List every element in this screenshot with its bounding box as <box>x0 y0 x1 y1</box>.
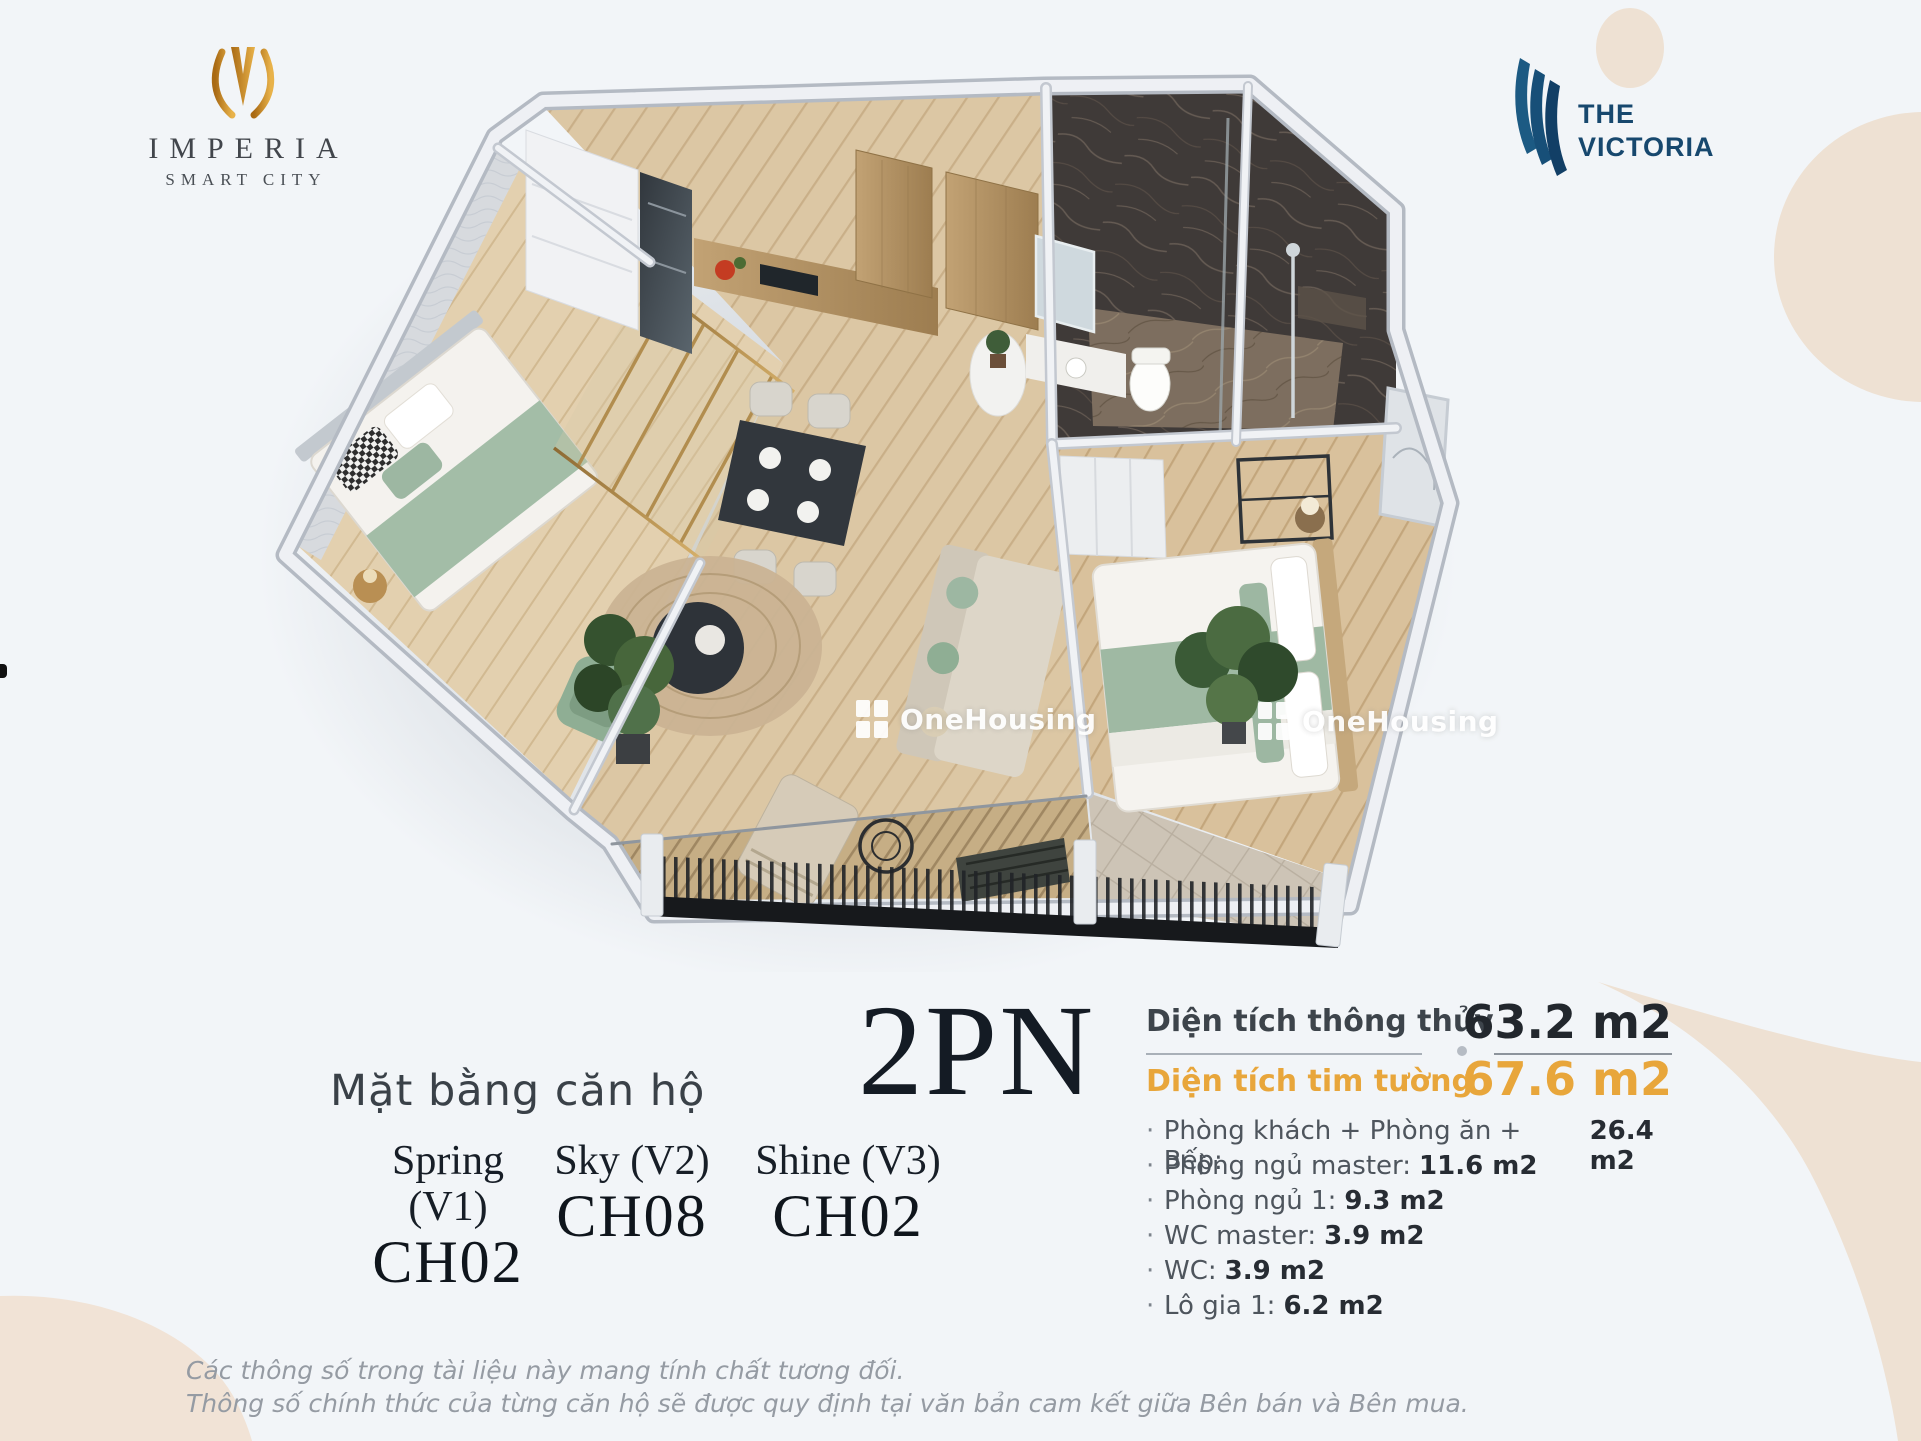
entry-door <box>946 172 1038 330</box>
console-plant <box>986 330 1010 354</box>
toilet <box>1130 357 1170 411</box>
plant-pot <box>616 734 650 764</box>
room-value: 26.4 m2 <box>1590 1116 1706 1176</box>
watermark-text: OneHousing <box>900 703 1097 736</box>
plate <box>809 459 831 481</box>
room-row: · WC: 3.9 m2 <box>1146 1256 1706 1291</box>
room-value: 3.9 m2 <box>1324 1221 1424 1251</box>
variant-unit: CH02 <box>748 1184 948 1248</box>
victoria-wordmark: THE VICTORIA <box>1578 98 1715 164</box>
gross-area-value: 67.6 m2 <box>1420 1052 1672 1106</box>
coffee-tray <box>695 625 725 655</box>
plate <box>797 501 819 523</box>
onehousing-window-icon <box>856 700 890 738</box>
variant-shine: Shine (V3) CH02 <box>748 1138 948 1248</box>
bed1-lamp <box>363 569 377 583</box>
floorplan-render <box>248 58 1472 972</box>
bullet-icon: · <box>1146 1151 1164 1181</box>
onehousing-window-icon <box>1258 702 1292 740</box>
variant-spring: Spring (V1) CH02 <box>348 1138 548 1294</box>
wardrobe <box>1060 456 1166 558</box>
tree-pot <box>1222 722 1246 744</box>
victoria-line1: THE <box>1578 98 1715 131</box>
toilet-tank <box>1132 348 1170 364</box>
victoria-logo: THE VICTORIA <box>1510 54 1770 194</box>
variant-name: Shine (V3) <box>748 1138 948 1184</box>
variant-unit: CH02 <box>348 1230 548 1294</box>
railing-post <box>641 834 663 916</box>
dining-chair <box>750 382 792 416</box>
scan-artifact <box>0 664 7 678</box>
bullet-icon: · <box>1146 1186 1164 1216</box>
room-areas-list: · Phòng khách + Phòng ăn + Bếp: 26.4 m2 … <box>1146 1116 1706 1326</box>
plate <box>759 447 781 469</box>
bullet-icon: · <box>1146 1256 1164 1286</box>
room-label: Phòng ngủ 1: <box>1164 1186 1336 1216</box>
fruit-bowl <box>715 260 735 280</box>
dining-chair <box>808 394 850 428</box>
watermark-text: OneHousing <box>1302 705 1499 738</box>
shower-head <box>1286 243 1300 257</box>
room-value: 6.2 m2 <box>1283 1291 1383 1321</box>
console-pot <box>990 354 1006 368</box>
fruit-greens <box>734 257 746 269</box>
room-label: WC: <box>1164 1256 1217 1286</box>
master-lamp <box>1301 497 1319 515</box>
disclaimer-line1: Các thông số trong tài liệu này mang tín… <box>186 1354 1469 1387</box>
plan-title-label: Mặt bằng căn hộ <box>330 1066 705 1116</box>
room-value: 9.3 m2 <box>1344 1186 1444 1216</box>
room-row: · Phòng khách + Phòng ăn + Bếp: 26.4 m2 <box>1146 1116 1706 1151</box>
room-value: 11.6 m2 <box>1419 1151 1537 1181</box>
dining-chair <box>794 562 836 596</box>
divider-line <box>1146 1053 1422 1055</box>
railing-post <box>1074 840 1096 924</box>
variant-name: Spring (V1) <box>348 1138 548 1230</box>
victoria-stripes-icon <box>1510 56 1576 192</box>
plan-type: 2PN <box>858 986 1095 1116</box>
closet-door <box>856 150 932 298</box>
room-row: · Lô gia 1: 6.2 m2 <box>1146 1291 1706 1326</box>
room-row: · WC master: 3.9 m2 <box>1146 1221 1706 1256</box>
plate <box>747 489 769 511</box>
variant-name: Sky (V2) <box>542 1138 722 1184</box>
victoria-line2: VICTORIA <box>1578 131 1715 164</box>
room-value: 3.9 m2 <box>1225 1256 1325 1286</box>
disclaimer-line2: Thông số chính thức của từng căn hộ sẽ đ… <box>186 1387 1469 1420</box>
room-label: Lô gia 1: <box>1164 1291 1275 1321</box>
room-label: Phòng ngủ master: <box>1164 1151 1411 1181</box>
room-row: · Phòng ngủ 1: 9.3 m2 <box>1146 1186 1706 1221</box>
clear-area-value: 63.2 m2 <box>1420 995 1672 1049</box>
room-label: WC master: <box>1164 1221 1316 1251</box>
variant-unit: CH08 <box>542 1184 722 1248</box>
bathroom-basin <box>1066 358 1086 378</box>
onehousing-watermark: OneHousing <box>1258 702 1499 740</box>
onehousing-watermark: OneHousing <box>856 700 1097 738</box>
brochure-page: IMPERIA SMART CITY THE VICTORIA <box>0 0 1921 1441</box>
bullet-icon: · <box>1146 1116 1164 1146</box>
variant-sky: Sky (V2) CH08 <box>542 1138 722 1248</box>
bullet-icon: · <box>1146 1291 1164 1321</box>
disclaimer: Các thông số trong tài liệu này mang tín… <box>186 1354 1469 1420</box>
bullet-icon: · <box>1146 1221 1164 1251</box>
